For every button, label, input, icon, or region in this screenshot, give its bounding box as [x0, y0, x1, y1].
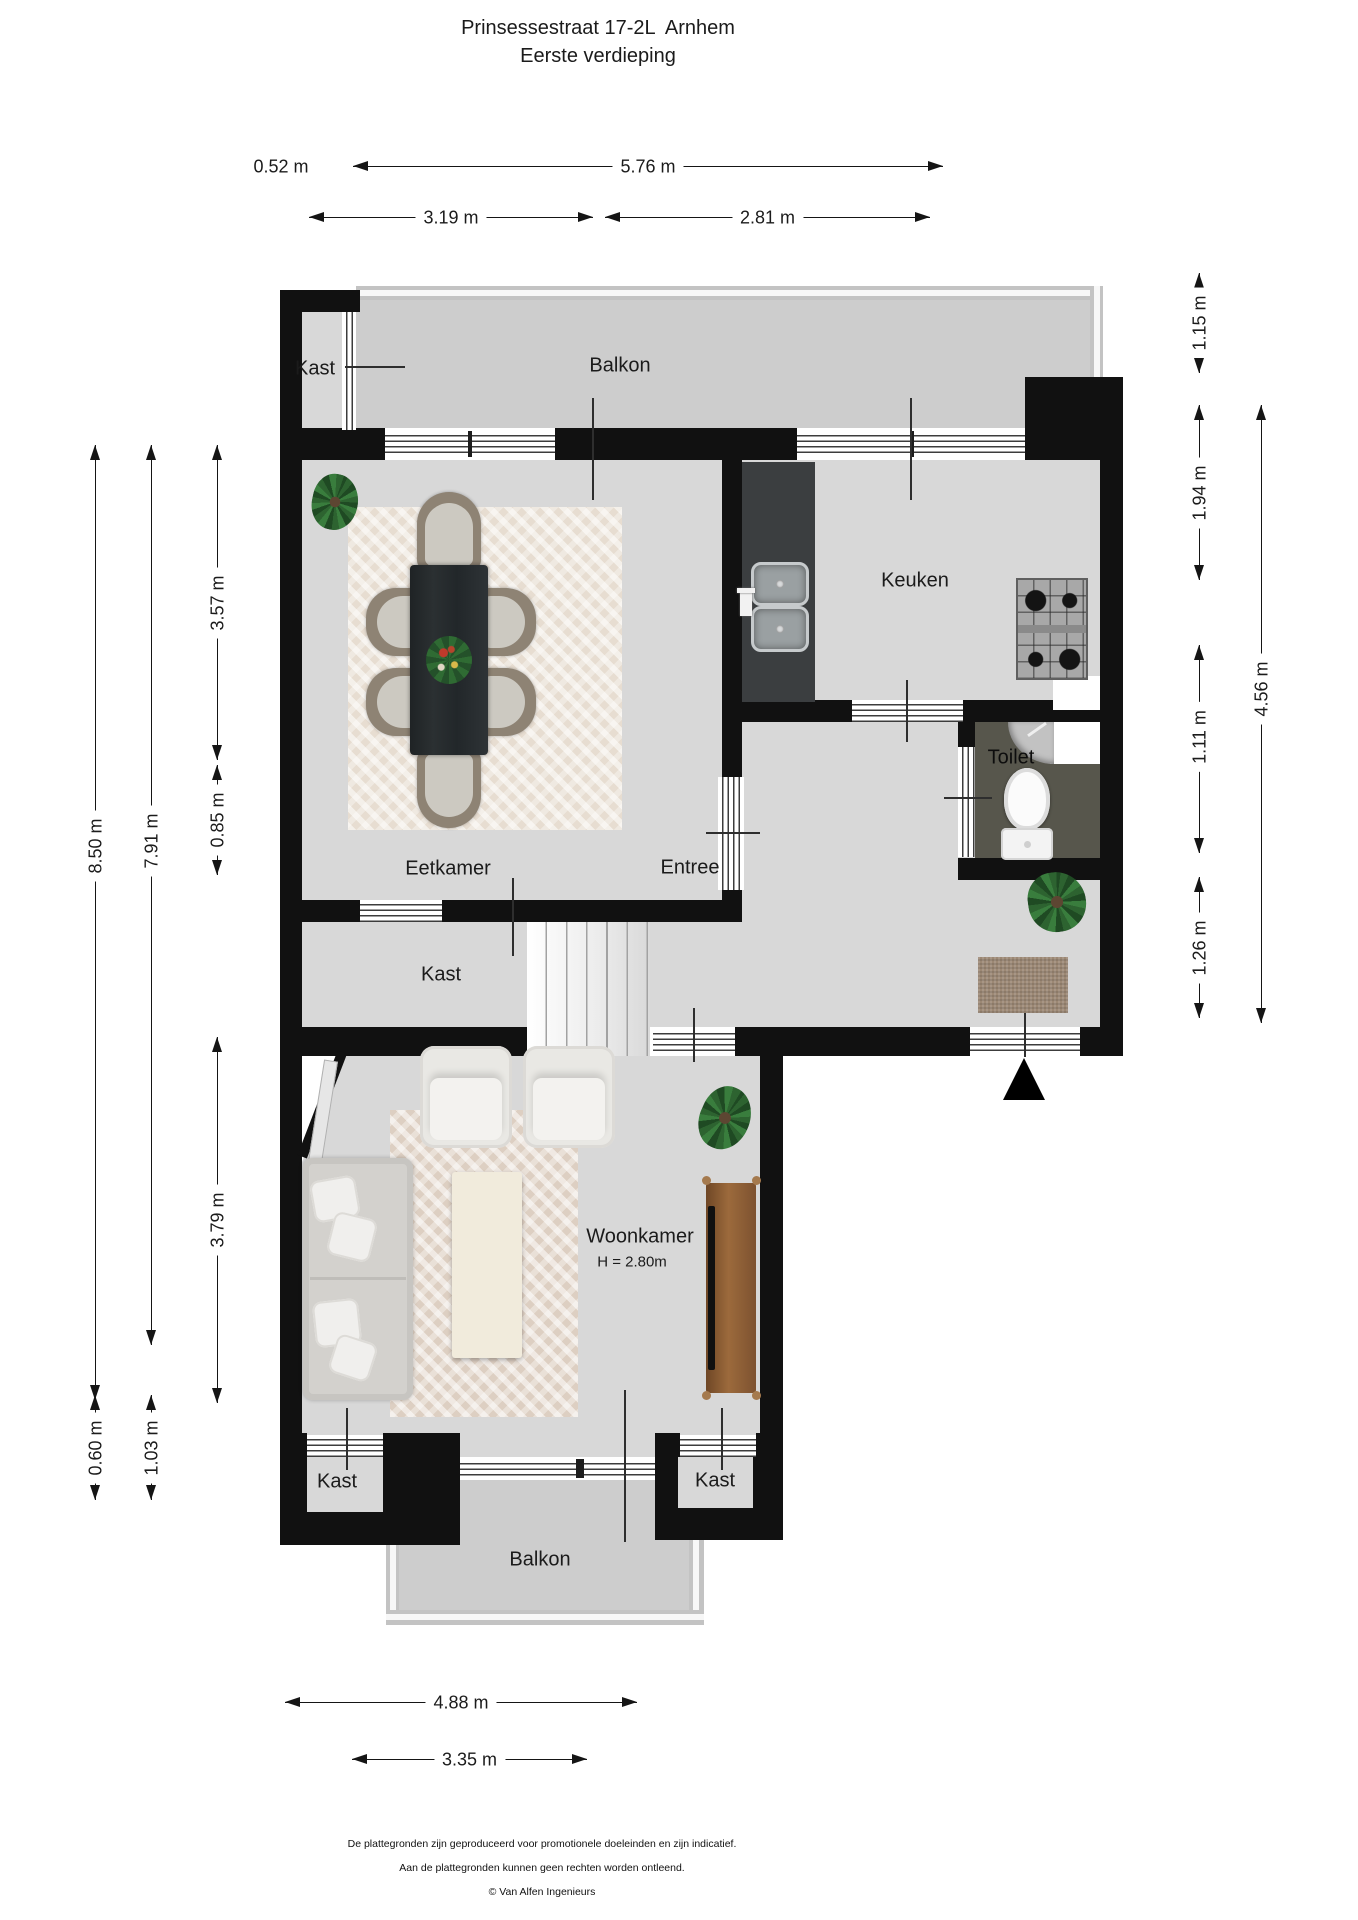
- room-label-kast-bottom-left: Kast: [317, 1471, 357, 1494]
- room-label-balkon-bottom: Balkon: [509, 1549, 570, 1572]
- room-label-eetkamer: Eetkamer: [405, 858, 491, 881]
- tv-screen: [708, 1206, 715, 1370]
- balcony-railing-top: [356, 286, 1103, 300]
- dim-label: 1.03 m: [142, 1412, 163, 1483]
- kitchen-faucet: [740, 592, 752, 616]
- dim-label: 1.94 m: [1190, 457, 1211, 528]
- room-label-balkon-top: Balkon: [589, 355, 650, 378]
- window-kast-top: [342, 312, 356, 430]
- dim-bottom-balkon: 3.35 m: [352, 1759, 587, 1760]
- counter-notch: [1053, 676, 1100, 710]
- window-woonkamer-south: [460, 1459, 658, 1478]
- kast-leader-left: [346, 1408, 348, 1470]
- wall-south-1: [280, 1433, 307, 1457]
- wall-south-4: [756, 1433, 783, 1457]
- sofa-seam: [310, 1277, 406, 1280]
- title-address: Prinsessestraat 17-2L Arnhem: [0, 14, 1196, 42]
- extension-line: [944, 797, 992, 799]
- dim-top-right-segment: 2.81 m: [605, 217, 930, 218]
- window-mullion: [468, 431, 472, 457]
- kitchen-faucet-handle: [737, 588, 755, 593]
- wall-toilet-west: [958, 722, 975, 747]
- disclaimer: De plattegronden zijn geproduceerd voor …: [0, 1832, 1084, 1904]
- disclaimer-line-2: Aan de plattegronden kunnen geen rechten…: [0, 1856, 1084, 1880]
- dim-right-balkon: 1.15 m: [1199, 273, 1200, 373]
- cabinet-leg: [702, 1176, 711, 1185]
- window-kast-bottom-right: [680, 1435, 756, 1457]
- door-toilet: [958, 747, 975, 857]
- floor-plan-page: Prinsessestraat 17-2L Arnhem Eerste verd…: [0, 0, 1358, 1920]
- dim-left-balkon-offset: 1.03 m: [151, 1395, 152, 1500]
- staircase: [527, 922, 650, 1056]
- doormat: [978, 957, 1068, 1013]
- wall-entree-south-3: [1080, 1027, 1123, 1056]
- entree-floor-west: [650, 922, 742, 1027]
- dim-label: 7.91 m: [142, 805, 163, 876]
- window-mullion: [576, 1459, 584, 1478]
- extension-line: [906, 680, 908, 742]
- cabinet-leg: [702, 1391, 711, 1400]
- title-floor: Eerste verdieping: [0, 42, 1196, 70]
- disclaimer-line-1: De plattegronden zijn geproduceerd voor …: [0, 1832, 1084, 1856]
- toilet-corner-notch: [1050, 722, 1100, 764]
- dim-right-keuken: 1.94 m: [1199, 405, 1200, 580]
- dim-left-kast: 0.85 m: [217, 765, 218, 875]
- dim-left-inner: 7.91 m: [151, 445, 152, 1345]
- dim-label: 2.81 m: [732, 208, 803, 229]
- room-label-keuken: Keuken: [881, 570, 949, 593]
- dim-label: 8.50 m: [86, 811, 107, 882]
- dim-top-total: 5.76 m: [353, 166, 943, 167]
- dim-label: 3.19 m: [415, 208, 486, 229]
- dim-left-eetkamer: 3.57 m: [217, 445, 218, 760]
- dim-label: 1.26 m: [1190, 912, 1211, 983]
- room-label-kast-bottom-right: Kast: [695, 1470, 735, 1493]
- dim-top-left-segment: 3.19 m: [309, 217, 593, 218]
- dim-label: 3.35 m: [434, 1750, 505, 1771]
- extension-line: [624, 1390, 626, 1542]
- extension-line: [706, 832, 760, 834]
- extension-line: [910, 398, 912, 500]
- toilet-bowl: [1004, 768, 1050, 830]
- wall-south-3: [655, 1433, 680, 1457]
- stove-icon: [1016, 578, 1088, 680]
- extension-line: [592, 398, 594, 500]
- wall-west: [280, 290, 302, 1457]
- wall-woonkamer-east: [760, 1050, 783, 1457]
- wall-keuken-south-1: [742, 700, 852, 722]
- room-label-woonkamer-height: H = 2.80m: [597, 1254, 667, 1271]
- dim-right-total: 4.56 m: [1261, 405, 1262, 1023]
- table-centerpiece: [426, 636, 472, 684]
- dim-label: 3.57 m: [208, 567, 229, 638]
- extension-line: [512, 878, 514, 956]
- armchair-2: [523, 1046, 615, 1148]
- wall-east: [1100, 377, 1123, 1050]
- dim-label: 4.88 m: [425, 1693, 496, 1714]
- wall-kast-mid-north-1: [302, 900, 360, 922]
- kitchen-sink-2: [751, 606, 809, 652]
- room-label-kast-top: Kast: [295, 358, 335, 381]
- window-kast-bottom-left: [307, 1435, 383, 1457]
- dim-right-entree: 1.26 m: [1199, 877, 1200, 1018]
- doormat-leader: [1024, 1013, 1026, 1057]
- kast-leader-right: [721, 1408, 723, 1470]
- dim-left-total: 8.50 m: [95, 445, 96, 1400]
- wall-south-2: [383, 1433, 460, 1457]
- room-label-toilet: Toilet: [988, 747, 1035, 770]
- window-eetkamer-kast: [360, 900, 442, 922]
- balcony-railing-right: [1090, 286, 1103, 378]
- copyright: © Van Alfen Ingenieurs: [0, 1880, 1084, 1904]
- room-label-kast-mid: Kast: [421, 964, 461, 987]
- dim-label: 0.60 m: [86, 1412, 107, 1483]
- dim-left-balkon-depth: 0.60 m: [95, 1395, 96, 1500]
- wall-eetkamer-keuken-upper: [722, 460, 742, 777]
- dim-right-toilet: 1.11 m: [1199, 645, 1200, 853]
- page-title: Prinsessestraat 17-2L Arnhem Eerste verd…: [0, 14, 1196, 70]
- armchair-1: [420, 1046, 512, 1148]
- dim-bottom-total: 4.88 m: [285, 1702, 637, 1703]
- coffee-table: [452, 1172, 522, 1358]
- wall-kast-top-north: [280, 290, 360, 312]
- dining-chair-south: [417, 750, 481, 828]
- dim-left-woonkamer: 3.79 m: [217, 1037, 218, 1403]
- wall-kast-mid-north-2: [442, 900, 742, 922]
- room-label-woonkamer: Woonkamer: [586, 1226, 693, 1249]
- dining-chair-north: [417, 492, 481, 570]
- kast-top-leader: [345, 366, 405, 368]
- dim-label: 5.76 m: [612, 157, 683, 178]
- dim-label: 1.15 m: [1190, 287, 1211, 358]
- dim-label: 0.85 m: [208, 784, 229, 855]
- dim-label: 1.11 m: [1190, 702, 1211, 772]
- kitchen-sink-1: [751, 562, 809, 606]
- wall-north-1: [280, 428, 385, 460]
- toilet-tank: [1001, 828, 1053, 860]
- dim-label: 4.56 m: [1252, 654, 1273, 725]
- dim-label: 3.79 m: [208, 1184, 229, 1255]
- dim-top-offset: 0.52 m: [253, 157, 308, 178]
- kast-mid-floor: [302, 922, 527, 1027]
- extension-line: [693, 1008, 695, 1062]
- balcony-bottom-railing-south: [386, 1610, 704, 1625]
- balcony-top-floor: [356, 300, 1090, 428]
- room-label-entree: Entree: [661, 857, 720, 880]
- entrance-arrow-icon: [1003, 1058, 1045, 1100]
